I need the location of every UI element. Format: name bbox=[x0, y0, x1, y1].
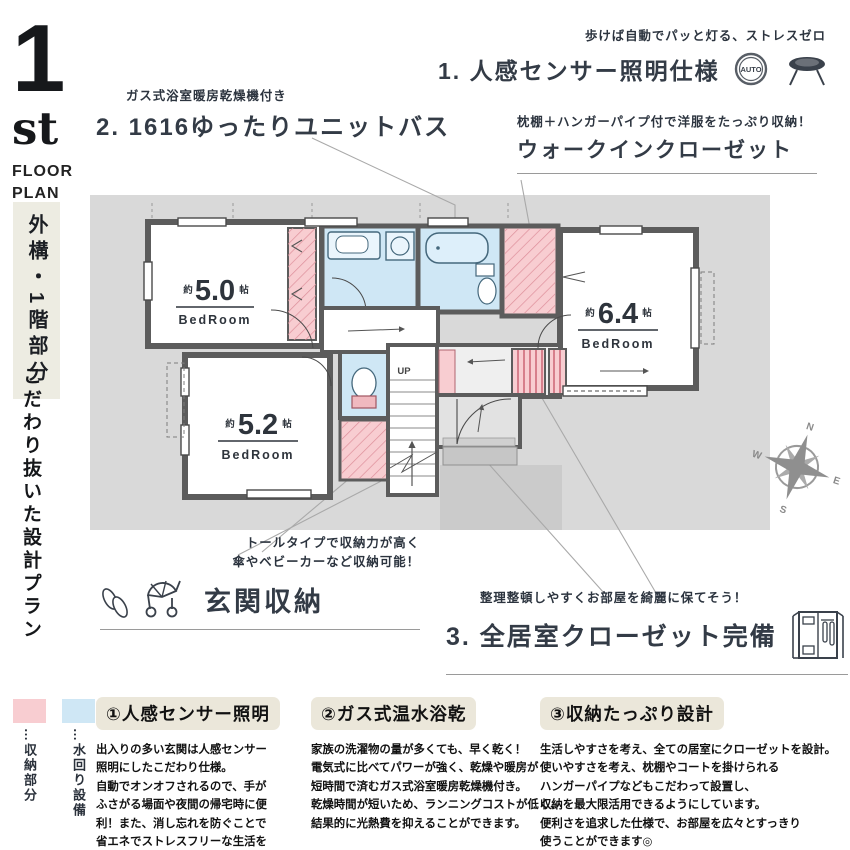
callout-unit-bath: ガス式浴室暖房乾燥機付き 2. 1616ゆったりユニットバス bbox=[96, 86, 450, 142]
legend-water-label: …水回り設備 bbox=[69, 728, 88, 818]
entrance bbox=[437, 395, 520, 465]
stairs bbox=[388, 345, 437, 495]
compass-n: N bbox=[805, 421, 815, 434]
room2-size: 5.2 bbox=[238, 409, 278, 441]
floor-number: 1 bbox=[12, 18, 102, 100]
compass-e: E bbox=[832, 475, 842, 488]
entrance-storage bbox=[439, 350, 455, 394]
legend-item-storage: …収納部分 bbox=[13, 699, 46, 818]
washing-machine bbox=[386, 232, 414, 260]
callout-bath-sub: ガス式浴室暖房乾燥機付き bbox=[126, 86, 450, 104]
callout-wic-title: ウォークインクローゼット bbox=[517, 134, 817, 164]
approach-path bbox=[440, 465, 562, 530]
feature-ample-storage: ③収納たっぷり設計 生活しやすさを考え、全ての居室にクローゼットを設計。 使いや… bbox=[540, 697, 836, 850]
feature3-body: 生活しやすさを考え、全ての居室にクローゼットを設計。 使いやすさを考え、枕棚やコ… bbox=[540, 741, 836, 850]
callout-sensor-lighting: 歩けば自動でパッと灯る、ストレスゼロ 1. 人感センサー照明仕様 AUTO bbox=[438, 26, 840, 89]
porch-step bbox=[443, 447, 517, 465]
room-washroom bbox=[322, 226, 418, 312]
stairs-up-label: UP bbox=[397, 366, 411, 377]
water-color-swatch bbox=[62, 699, 95, 723]
legend-storage-label: …収納部分 bbox=[20, 728, 39, 803]
feature3-title: ③収納たっぷり設計 bbox=[540, 697, 724, 730]
feature1-body: 出入りの多い玄関は人感センサー 照明にしたこだわり仕様。 自動でオンオフされるの… bbox=[96, 741, 280, 850]
room1-size-unit: 帖 bbox=[239, 284, 249, 296]
closet-under-stairs bbox=[340, 420, 388, 480]
room2-name: BedRoom bbox=[221, 448, 294, 462]
floor-mark: 1 st FLOOR PLAN bbox=[12, 18, 102, 205]
feature2-title: ②ガス式温水浴乾 bbox=[311, 697, 476, 730]
shoes-icon bbox=[100, 583, 130, 619]
floor-plan-label: FLOOR PLAN bbox=[12, 161, 102, 206]
room3-size-prefix: 約 bbox=[585, 307, 595, 319]
auto-icon-label: AUTO bbox=[740, 65, 761, 74]
floor-suffix: st bbox=[12, 106, 102, 151]
room1-name: BedRoom bbox=[178, 313, 251, 327]
room3-name: BedRoom bbox=[581, 337, 654, 351]
floorplan-page: 約 5.0 帖 BedRoom 約 5.2 帖 BedRoom 約 6.4 帖 … bbox=[0, 0, 850, 850]
callout-wic-sub: 枕棚＋ハンガーパイプ付で洋服をたっぷり収納！ bbox=[517, 112, 817, 130]
callout-walk-in-closet: 枕棚＋ハンガーパイプ付で洋服をたっぷり収納！ ウォークインクローゼット bbox=[517, 112, 817, 174]
auto-sensor-icon: AUTO bbox=[732, 50, 770, 88]
room1-size-prefix: 約 bbox=[183, 284, 193, 296]
callout-closet-sub: 整理整頓しやすくお部屋を綺麗に保てそう！ bbox=[480, 588, 848, 606]
callout-bath-title: 2. 1616ゆったりユニットバス bbox=[96, 107, 450, 142]
side-caption: こだわり抜いた設計プラン bbox=[17, 366, 44, 642]
legend-item-water: …水回り設備 bbox=[62, 699, 95, 818]
room3-size: 6.4 bbox=[598, 298, 638, 330]
room3-size-unit: 帖 bbox=[642, 307, 652, 319]
storage-color-swatch bbox=[13, 699, 46, 723]
callout-sensor-sub: 歩けば自動でパッと灯る、ストレスゼロ bbox=[438, 26, 840, 44]
callout-closet-title: 3. 全居室クローゼット完備 bbox=[446, 617, 777, 653]
callout-all-closets: 整理整頓しやすくお部屋を綺麗に保てそう！ 3. 全居室クローゼット完備 bbox=[446, 588, 848, 675]
legend: …収納部分 …水回り設備 bbox=[13, 699, 95, 818]
feature2-body: 家族の洗濯物の量が多くても、早く乾く！ 電気式に比べてパワーが強く、乾燥や暖房が… bbox=[311, 741, 562, 833]
room-walk-in-closet bbox=[502, 226, 558, 316]
closet-icon bbox=[791, 608, 845, 662]
feature-sensor-lighting: ①人感センサー照明 出入りの多い玄関は人感センサー 照明にしたこだわり仕様。 自… bbox=[96, 697, 280, 850]
callout-sensor-title: 1. 人感センサー照明仕様 bbox=[438, 52, 720, 86]
feature1-title: ①人感センサー照明 bbox=[96, 697, 280, 730]
feature-gas-bath-dryer: ②ガス式温水浴乾 家族の洗濯物の量が多くても、早く乾く！ 電気式に比べてパワーが… bbox=[311, 697, 562, 833]
room-unit-bath bbox=[418, 226, 502, 312]
ceiling-light-icon bbox=[782, 49, 832, 89]
toilet-icon bbox=[352, 368, 376, 398]
room2-size-prefix: 約 bbox=[225, 418, 235, 430]
room-toilet bbox=[340, 352, 388, 418]
callout-entrance-storage: トールタイプで収納力が高く 傘やベビーカーなど収納可能！ 玄関収納 bbox=[100, 534, 420, 630]
room2-size-unit: 帖 bbox=[282, 418, 292, 430]
compass-s: S bbox=[778, 504, 788, 517]
callout-entrance-sub: トールタイプで収納力が高く 傘やベビーカーなど収納可能！ bbox=[100, 534, 420, 571]
callout-entrance-title: 玄関収納 bbox=[204, 580, 324, 619]
stroller-icon bbox=[138, 571, 186, 619]
room1-size: 5.0 bbox=[195, 275, 235, 307]
bathtub bbox=[426, 233, 488, 263]
